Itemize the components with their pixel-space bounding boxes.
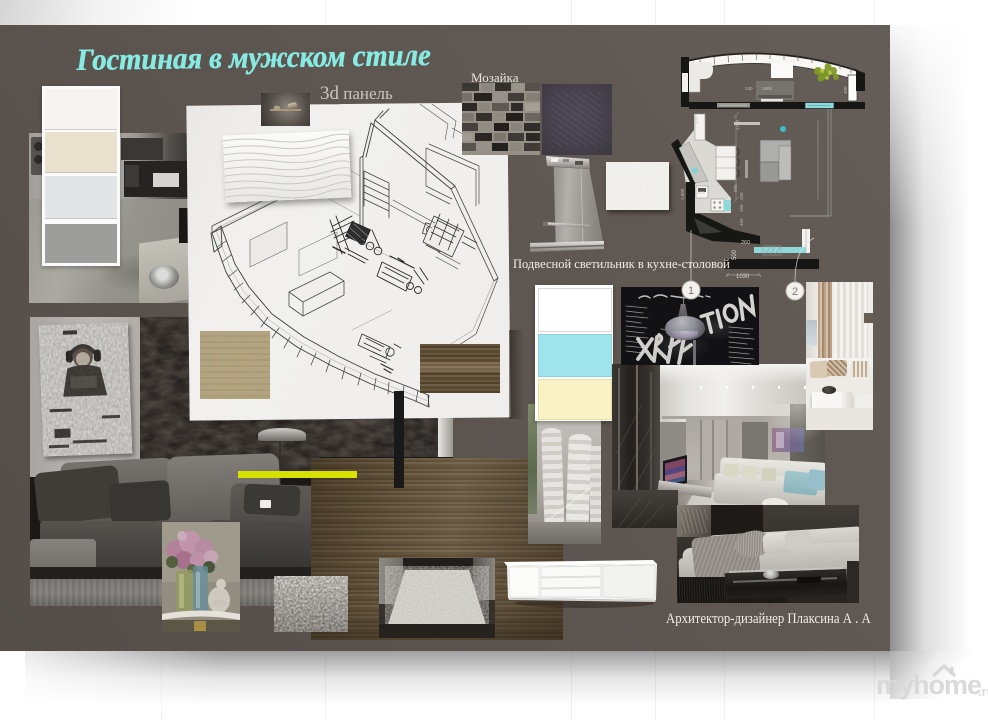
svg-text:900: 900 [733,184,738,192]
svg-text:150: 150 [739,204,744,212]
svg-text:500: 500 [732,249,738,260]
svg-text:1800: 1800 [762,86,773,91]
svg-text:260: 260 [741,240,750,246]
svg-text:240: 240 [745,86,753,91]
svg-text:myhome: myhome [876,670,982,700]
svg-text:1,600: 1,600 [680,188,685,200]
svg-text:2: 2 [792,286,798,298]
svg-text:450: 450 [739,218,744,226]
svg-text:400: 400 [843,86,848,94]
svg-text:600: 600 [697,190,705,195]
svg-text:400: 400 [694,116,699,124]
svg-text:1: 1 [688,285,694,297]
svg-text:.ru: .ru [978,684,988,699]
svg-text:450: 450 [739,192,744,200]
